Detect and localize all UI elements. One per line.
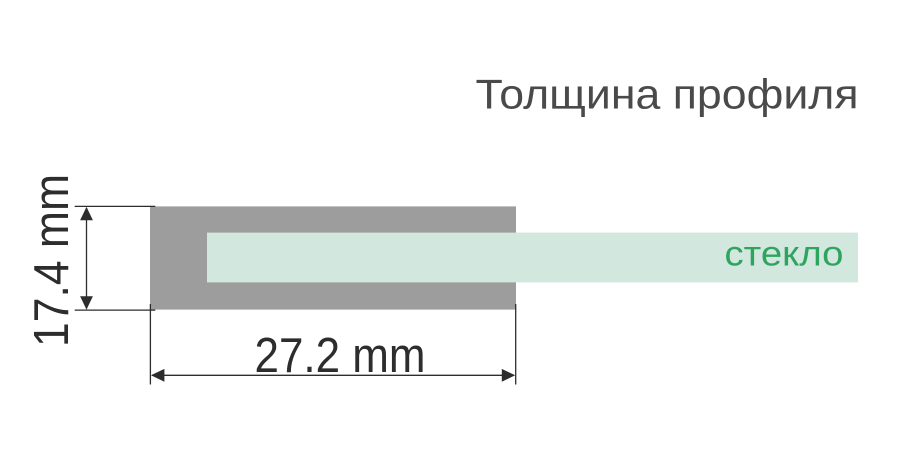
svg-text:Толщина профиля: Толщина профиля [476, 71, 859, 118]
svg-text:стекло: стекло [725, 235, 844, 274]
svg-text:27.2 mm: 27.2 mm [255, 328, 426, 383]
svg-text:17.4 mm: 17.4 mm [24, 174, 79, 347]
